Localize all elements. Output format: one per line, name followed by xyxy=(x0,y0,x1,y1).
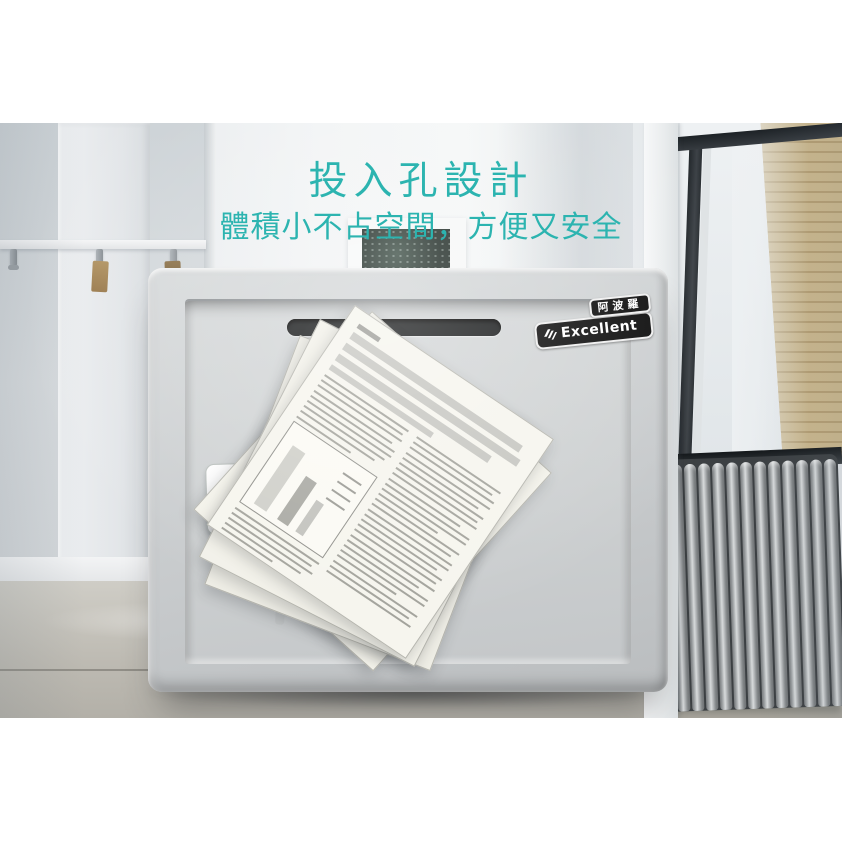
radiator xyxy=(654,454,842,712)
badge-brand-english: Excellent xyxy=(560,318,638,341)
headline-title: 投入孔設計 xyxy=(0,150,842,206)
coat-hook xyxy=(10,249,17,266)
excellent-logo-icon xyxy=(541,325,559,346)
hanging-wood-tag xyxy=(91,261,109,293)
headline-subtitle: 體積小不占空間，方便又安全 xyxy=(0,202,842,246)
product-image: 投入孔設計 體積小不占空間，方便又安全 xyxy=(0,0,842,842)
